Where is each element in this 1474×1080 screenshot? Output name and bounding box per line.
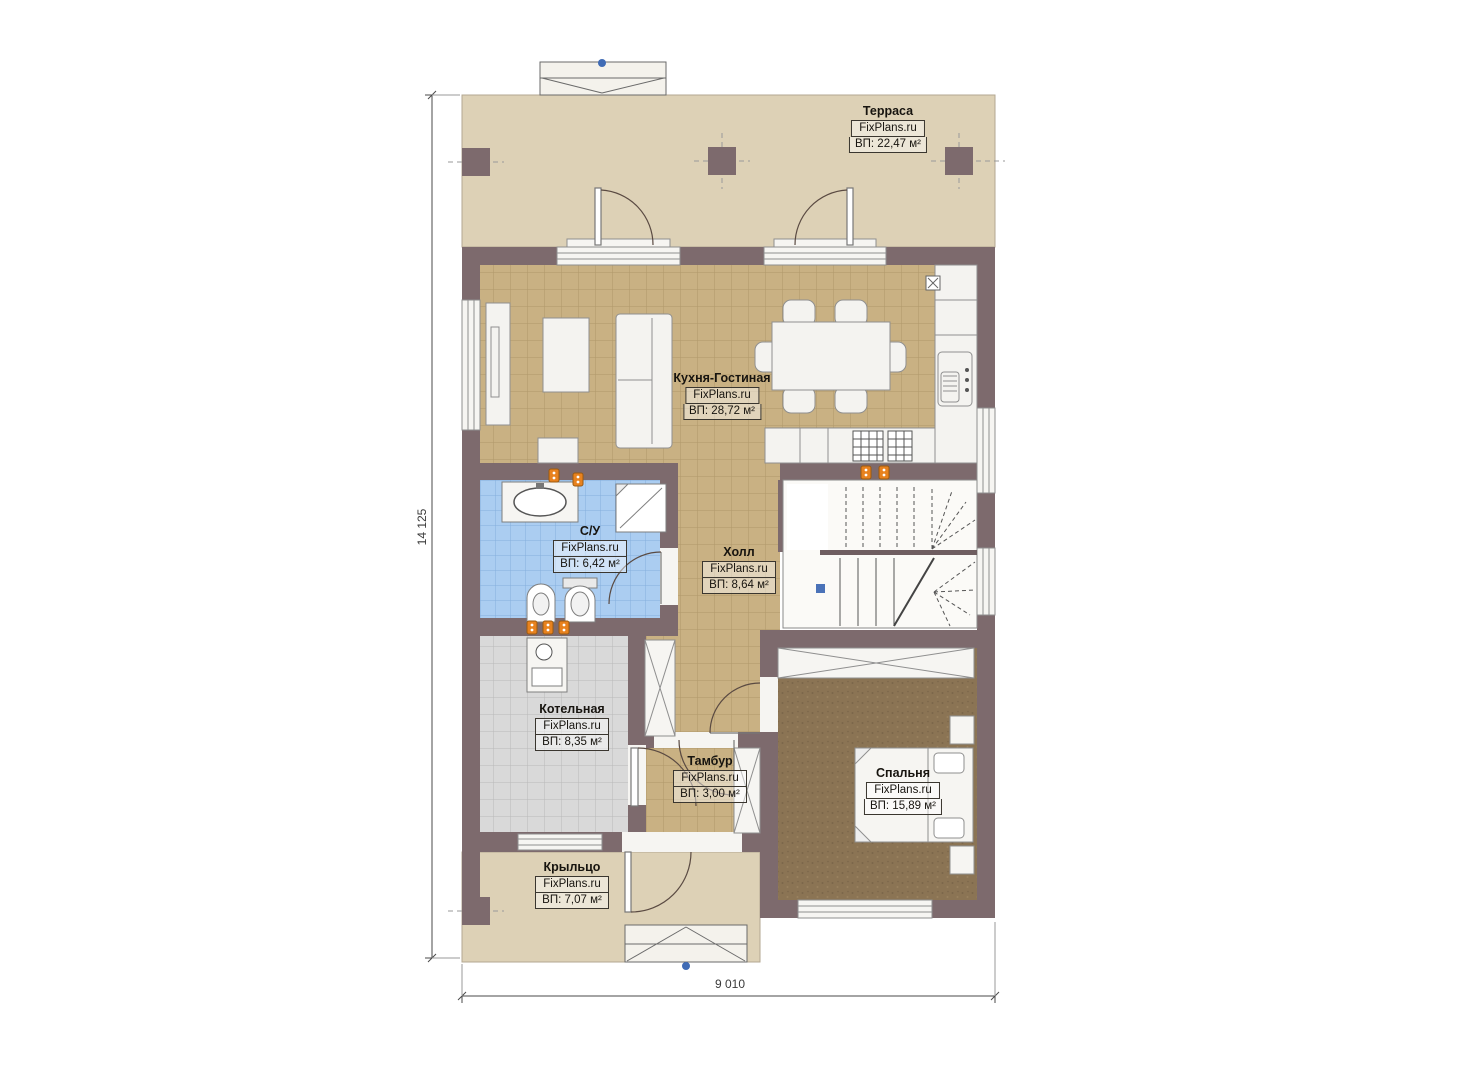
room-area: ВП: 22,47 м² [849, 137, 927, 153]
terrace-steps [540, 62, 666, 95]
room-label-boiler: Котельная FixPlans.ru ВП: 8,35 м² [535, 702, 609, 751]
nightstand-top [950, 716, 974, 744]
terrace-door-unit-right [764, 239, 886, 265]
stair-divider [820, 550, 977, 555]
room-label-hall: Холл FixPlans.ru ВП: 8,64 м² [702, 545, 776, 594]
socket-icon [549, 469, 559, 482]
room-name: Кухня-Гостиная [673, 371, 770, 385]
hall-cabinet [645, 640, 675, 736]
room-name: Котельная [539, 702, 604, 716]
room-label-vestibule: Тамбур FixPlans.ru ВП: 3,00 м² [673, 754, 747, 803]
room-area: ВП: 8,35 м² [535, 735, 609, 751]
bathroom-door-opening [660, 548, 678, 605]
room-area: ВП: 8,64 м² [702, 578, 776, 594]
sink [938, 352, 972, 406]
window-bedroom [798, 900, 932, 918]
stair-marker [816, 584, 825, 593]
coffee-table [543, 318, 589, 392]
room-name: Спальня [876, 766, 930, 780]
nightstand-bottom [950, 846, 974, 874]
socket-icon [559, 621, 569, 634]
room-name: С/У [580, 524, 600, 538]
dimension-width-label: 9 010 [715, 977, 745, 991]
oven [888, 431, 912, 461]
room-label-porch: Крыльцо FixPlans.ru ВП: 7,07 м² [535, 860, 609, 909]
room-label-terrace: Терраса FixPlans.ru ВП: 22,47 м² [849, 104, 927, 153]
boiler-fixtures [527, 638, 567, 692]
toilet [563, 578, 597, 622]
room-watermark: FixPlans.ru [702, 561, 776, 578]
room-area: ВП: 6,42 м² [553, 557, 627, 573]
washbasin [502, 482, 578, 522]
window-boiler [518, 834, 602, 850]
room-area: ВП: 15,89 м² [864, 799, 942, 815]
room-watermark: FixPlans.ru [673, 770, 747, 787]
socket-icon [861, 466, 871, 479]
room-label-bedroom: Спальня FixPlans.ru ВП: 15,89 м² [864, 766, 942, 815]
axis-marker-bottom [682, 962, 690, 970]
room-area: ВП: 7,07 м² [535, 893, 609, 909]
kitchen-counter-right [935, 265, 977, 463]
room-watermark: FixPlans.ru [685, 387, 759, 404]
dimension-left [425, 91, 460, 962]
socket-icon [527, 621, 537, 634]
room-area: ВП: 3,00 м² [673, 787, 747, 803]
room-name: Холл [723, 545, 754, 559]
room-name: Терраса [863, 104, 913, 118]
entrance-opening [622, 832, 742, 852]
room-area: ВП: 28,72 м² [683, 404, 761, 420]
vent-icon [926, 276, 940, 290]
window-kitchen-left [462, 300, 480, 430]
socket-icon [573, 473, 583, 486]
bedroom-wardrobe [778, 648, 974, 678]
floor-plan-drawing [0, 0, 1474, 1080]
room-label-bathroom: С/У FixPlans.ru ВП: 6,42 м² [553, 524, 627, 573]
kitchen-counter-bottom [765, 428, 935, 463]
room-watermark: FixPlans.ru [553, 540, 627, 557]
terrace-door-unit-left [557, 239, 680, 265]
staircase [783, 480, 977, 628]
room-label-kitchen-living: Кухня-Гостиная FixPlans.ru ВП: 28,72 м² [673, 371, 770, 420]
side-cabinet [538, 438, 578, 463]
room-name: Крыльцо [544, 860, 601, 874]
room-watermark: FixPlans.ru [535, 718, 609, 735]
window-kitchen-right [977, 408, 995, 493]
room-watermark: FixPlans.ru [866, 782, 940, 799]
hob [853, 431, 883, 461]
bidet [527, 584, 555, 622]
porch-steps [625, 925, 747, 962]
sofa [616, 314, 672, 448]
room-name: Тамбур [687, 754, 732, 768]
tv-stand [486, 303, 510, 425]
dimension-height-label: 14 125 [415, 509, 429, 546]
window-stairs-right [977, 548, 995, 615]
room-watermark: FixPlans.ru [535, 876, 609, 893]
floor-plan-page: Терраса FixPlans.ru ВП: 22,47 м² Кухня-Г… [0, 0, 1474, 1080]
axis-marker-top [598, 59, 606, 67]
socket-icon [543, 621, 553, 634]
bedroom-door-opening [760, 677, 778, 732]
socket-icon [879, 466, 889, 479]
room-watermark: FixPlans.ru [851, 120, 925, 137]
